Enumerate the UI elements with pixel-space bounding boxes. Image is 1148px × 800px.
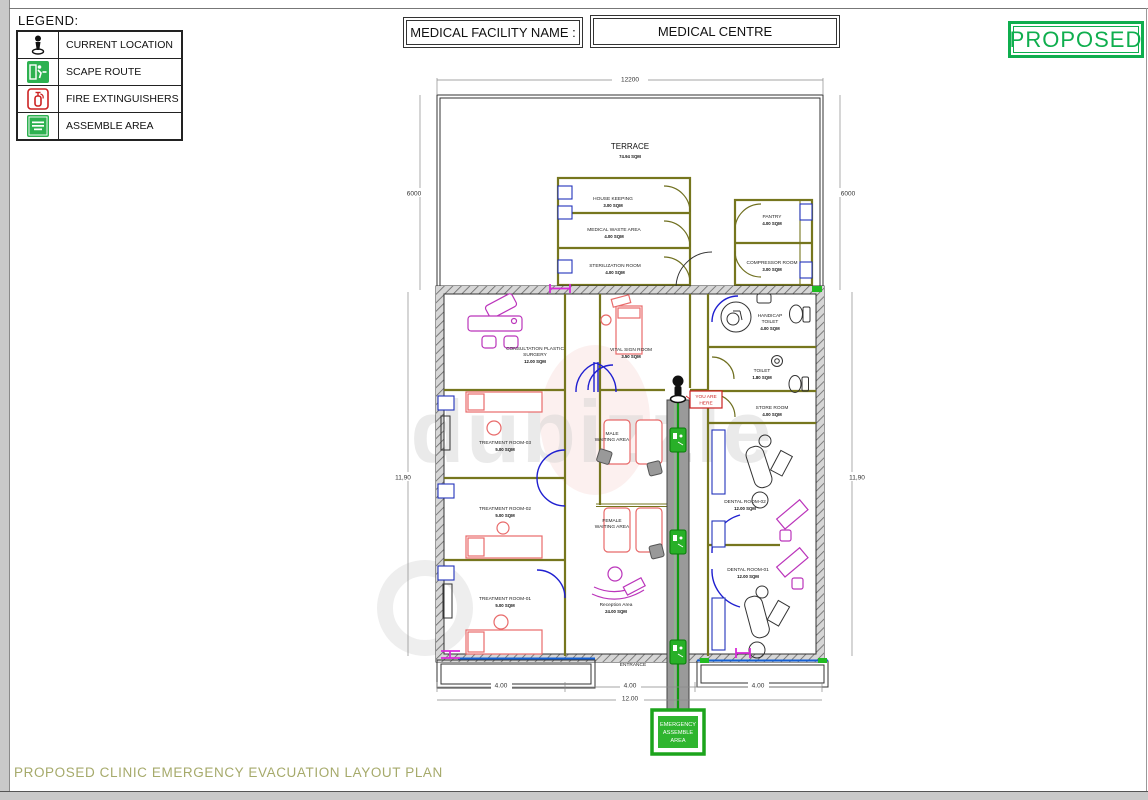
you-are-here-line2: HERE [699, 401, 712, 407]
treatment-room-2-furniture [438, 484, 542, 558]
sheet-right-border [1146, 8, 1147, 791]
dim-right-1190: 11,90 [849, 475, 865, 482]
pantry-block-walls [735, 200, 812, 285]
dental-room-1-furniture [712, 521, 808, 658]
room-sqm-dental-2: 12.00 SQM [734, 506, 756, 511]
room-label-medical-waste: MEDICAL WASTE AREA [587, 227, 641, 233]
facility-name-text: MEDICAL CENTRE [593, 18, 837, 45]
room-label-pantry: PANTRY [762, 214, 782, 220]
room-label-compressor: COMPRESSOR ROOM [747, 260, 798, 266]
scape-route-icon [18, 59, 59, 85]
legend-label-fire-extinguishers: FIRE EXTINGUISHERS [59, 86, 181, 112]
reception-furniture [592, 567, 645, 599]
room-label-treatment-3: TREATMENT ROOM-03 [479, 440, 531, 446]
assemble-area-line3: AREA [670, 738, 686, 744]
room-label-female-waiting-1: FEMALE [602, 518, 621, 524]
legend-label-assemble-area: ASSEMBLE AREA [59, 113, 181, 139]
sheet-top-border [9, 8, 1148, 9]
room-sqm-treatment-1: 5.00 SQM [495, 603, 515, 608]
room-sqm-medical-waste: 4.00 SQM [604, 234, 624, 239]
room-label-dental-1: DENTAL ROOM-01 [727, 567, 769, 573]
room-sqm-compressor: 3.00 SQM [762, 267, 782, 272]
room-sqm-treatment-2: 5.00 SQM [495, 513, 515, 518]
room-label-vital-sign: VITAL SIGN ROOM [610, 347, 652, 353]
room-sqm-housekeeping: 3.00 SQM [603, 203, 623, 208]
sheet-bottom-margin [0, 791, 1148, 800]
dim-top-width: 12200 [621, 77, 639, 84]
room-sqm-reception: 24.00 SQM [605, 609, 627, 614]
legend-title: LEGEND: [18, 13, 79, 28]
proposed-status-text: PROPOSED [1013, 26, 1139, 53]
dim-right-6000: 6000 [841, 191, 856, 198]
entrance-label: ENTRANCE [620, 662, 646, 668]
escape-route-sign [670, 530, 686, 554]
dim-left-1190: 11,90 [395, 475, 411, 482]
consultation-furniture [468, 293, 522, 348]
room-sqm-sterilization: 4.00 SQM [605, 270, 625, 275]
room-label-handicap-2: TOILET [762, 319, 779, 325]
room-sqm-dental-1: 12.00 SQM [737, 574, 759, 579]
dim-bottom-seg1: 4.00 [495, 683, 508, 690]
assemble-area-line1: EMERGENCY [660, 722, 696, 728]
room-label-reception: Reception Area [600, 602, 633, 608]
dim-bottom-total: 12.00 [622, 696, 639, 703]
assemble-area-line2: ASSEMBLE [663, 730, 693, 736]
legend-label-current-location: CURRENT LOCATION [59, 32, 181, 58]
room-label-housekeeping: HOUSE KEEPING [593, 196, 633, 202]
room-label-consultation-2: SURGERY [523, 352, 547, 358]
room-label-treatment-2: TREATMENT ROOM-02 [479, 506, 531, 512]
room-sqm-terrace: 74.94 SQM [619, 154, 641, 159]
legend-label-scape-route: SCAPE ROUTE [59, 59, 181, 85]
legend-row-assemble-area: ASSEMBLE AREA [18, 113, 181, 139]
escape-route-corridor [667, 400, 689, 718]
exit-sign-marker [700, 658, 709, 663]
room-sqm-toilet: 1.80 SQM [752, 375, 772, 380]
room-sqm-pantry: 4.00 SQM [762, 221, 782, 226]
room-label-dental-2: DENTAL ROOM-02 [724, 499, 766, 505]
room-label-male-waiting-1: MALE [605, 431, 618, 437]
sheet-left-margin [0, 0, 10, 800]
terrace-door-arc [676, 252, 712, 288]
room-label-handicap-1: HANDICAP [758, 313, 783, 319]
dim-left-6000: 6000 [407, 191, 422, 198]
vital-sign-furniture [601, 295, 642, 354]
assemble-area-icon [18, 113, 59, 139]
dim-bottom-seg3: 4.00 [752, 683, 765, 690]
legend-row-current-location: CURRENT LOCATION [18, 32, 181, 59]
room-sqm-store: 4.00 SQM [762, 412, 782, 417]
exit-sign-marker [818, 658, 827, 663]
exit-sign-marker [812, 286, 822, 292]
room-label-toilet: TOILET [754, 368, 771, 374]
legend-panel: CURRENT LOCATION SCAPE ROUTE [16, 30, 183, 141]
fire-extinguisher-icon [18, 86, 59, 112]
proposed-status-badge: PROPOSED [1008, 21, 1144, 58]
room-label-consultation-1: CONSULTATION PLASTIC [506, 346, 564, 352]
room-label-sterilization: STERILIZATION ROOM [589, 263, 641, 269]
room-sqm-handicap: 4.00 SQM [760, 326, 780, 331]
you-are-here-line1: YOU ARE [695, 394, 716, 400]
legend-row-fire-extinguishers: FIRE EXTINGUISHERS [18, 86, 181, 113]
room-label-male-waiting-2: WAITING AREA [595, 437, 630, 443]
room-label-female-waiting-2: WAITING AREA [595, 524, 630, 530]
escape-route-sign [670, 640, 686, 664]
legend-row-scape-route: SCAPE ROUTE [18, 59, 181, 86]
facility-name-box: MEDICAL CENTRE [590, 15, 840, 48]
current-location-marker: YOU ARE HERE [671, 376, 723, 409]
toilet-fixtures [772, 356, 809, 393]
room-label-terrace: TERRACE [611, 142, 649, 151]
room-label-store: STORE ROOM [756, 405, 789, 411]
room-sqm-treatment-3: 5.00 SQM [495, 447, 515, 452]
dim-bottom-seg2: 4.00 [624, 683, 637, 690]
escape-route-sign [670, 428, 686, 452]
room-label-treatment-1: TREATMENT ROOM-01 [479, 596, 531, 602]
facility-label-text: MEDICAL FACILITY NAME : [406, 20, 580, 45]
drawing-sheet: dubizzle [0, 0, 1148, 800]
room-sqm-consultation: 12.00 SQM [524, 359, 546, 364]
emergency-assemble-area: EMERGENCY ASSEMBLE AREA [652, 710, 704, 754]
current-location-icon [18, 32, 59, 58]
drawing-title: PROPOSED CLINIC EMERGENCY EVACUATION LAY… [14, 765, 443, 780]
room-sqm-vital-sign: 3.50 SQM [621, 354, 641, 359]
facility-label-box: MEDICAL FACILITY NAME : [403, 17, 583, 48]
